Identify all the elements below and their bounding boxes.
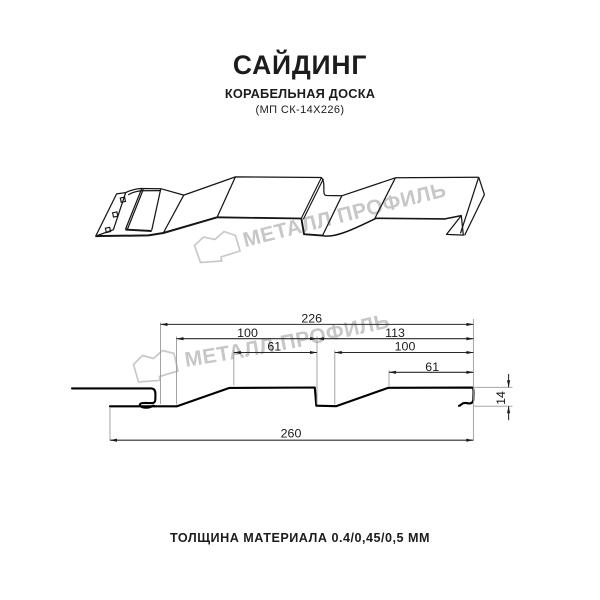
svg-text:МЕТАЛЛ ПРОФИЛЬ: МЕТАЛЛ ПРОФИЛЬ [183, 310, 392, 372]
svg-text:226: 226 [301, 311, 322, 325]
svg-text:61: 61 [425, 360, 439, 374]
svg-text:МЕТАЛЛ ПРОФИЛЬ: МЕТАЛЛ ПРОФИЛЬ [241, 178, 449, 252]
svg-text:61: 61 [267, 340, 281, 354]
svg-text:113: 113 [385, 326, 405, 340]
svg-text:14: 14 [494, 391, 508, 405]
svg-text:100: 100 [395, 340, 416, 354]
svg-text:260: 260 [281, 427, 302, 441]
svg-text:100: 100 [237, 326, 258, 340]
